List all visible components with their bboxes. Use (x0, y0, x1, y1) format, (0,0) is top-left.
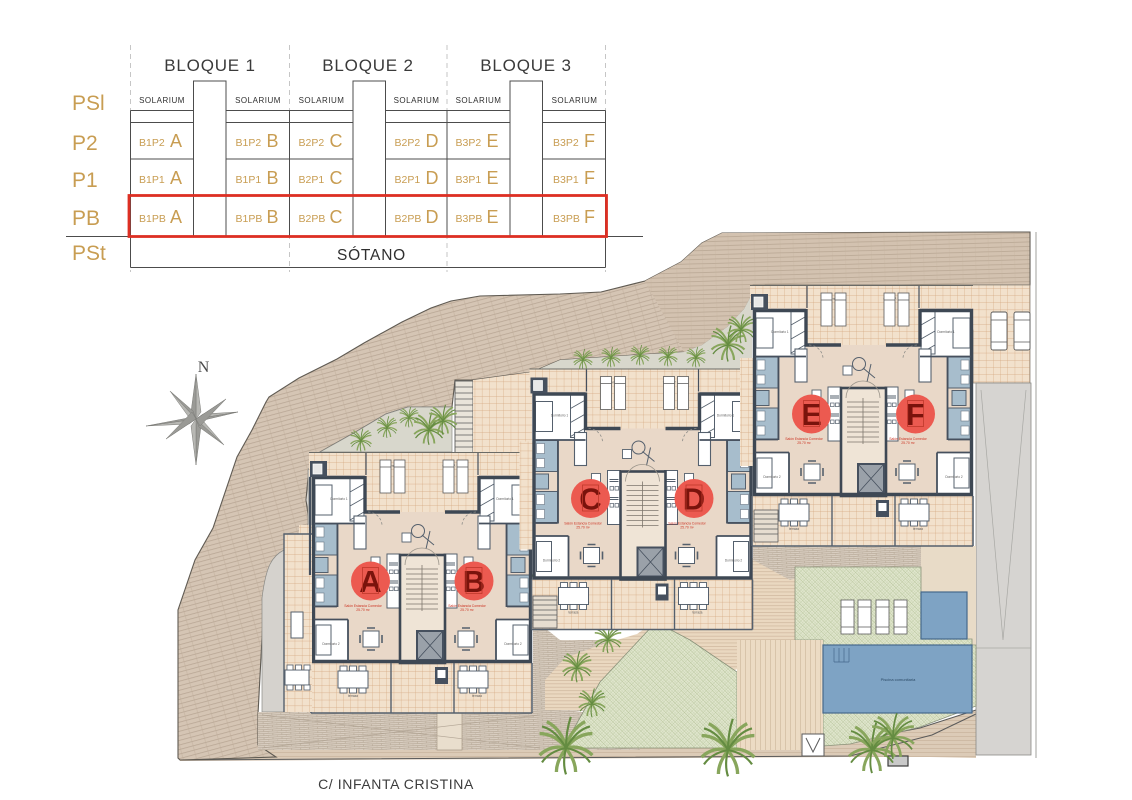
svg-text:B1P1: B1P1 (139, 174, 165, 186)
svg-text:B1P2: B1P2 (139, 137, 165, 149)
svg-text:A: A (170, 131, 182, 151)
svg-text:B3P2: B3P2 (456, 137, 482, 149)
svg-text:B3P1: B3P1 (553, 174, 579, 186)
svg-text:SÓTANO: SÓTANO (337, 247, 406, 264)
svg-text:A: A (170, 168, 182, 188)
svg-text:D: D (426, 207, 439, 227)
svg-text:B3P1: B3P1 (456, 174, 482, 186)
svg-text:25.70 m²: 25.70 m² (576, 526, 590, 530)
svg-text:B3PB: B3PB (553, 213, 580, 225)
svg-text:F: F (584, 131, 595, 151)
svg-text:BLOQUE 2: BLOQUE 2 (322, 56, 413, 75)
svg-text:BLOQUE 1: BLOQUE 1 (164, 56, 255, 75)
svg-text:D: D (426, 131, 439, 151)
svg-text:B2PB: B2PB (395, 213, 422, 225)
svg-text:SOLARIUM: SOLARIUM (235, 96, 281, 105)
svg-text:D: D (426, 168, 439, 188)
svg-text:E: E (487, 168, 499, 188)
svg-text:25.70 m²: 25.70 m² (901, 441, 915, 445)
svg-text:B2P2: B2P2 (395, 137, 421, 149)
svg-text:E: E (487, 131, 499, 151)
svg-text:P1: P1 (72, 169, 98, 192)
svg-text:PB: PB (72, 207, 100, 230)
svg-text:B1PB: B1PB (139, 213, 166, 225)
svg-text:PSl: PSl (72, 92, 105, 115)
svg-text:C: C (330, 131, 343, 151)
svg-text:SOLARIUM: SOLARIUM (552, 96, 598, 105)
svg-text:B2P2: B2P2 (299, 137, 325, 149)
svg-text:A: A (170, 207, 182, 227)
svg-text:SOLARIUM: SOLARIUM (139, 96, 185, 105)
svg-text:BLOQUE 3: BLOQUE 3 (480, 56, 571, 75)
svg-text:B2P1: B2P1 (299, 174, 325, 186)
svg-text:SOLARIUM: SOLARIUM (394, 96, 440, 105)
svg-text:B1P1: B1P1 (236, 174, 262, 186)
svg-text:B: B (267, 168, 279, 188)
svg-text:B3P2: B3P2 (553, 137, 579, 149)
svg-text:B: B (267, 207, 279, 227)
svg-text:C: C (330, 207, 343, 227)
svg-text:PSt: PSt (72, 242, 106, 265)
svg-text:C: C (330, 168, 343, 188)
svg-text:B: B (267, 131, 279, 151)
svg-text:25.70 m²: 25.70 m² (356, 608, 370, 612)
svg-text:B2P1: B2P1 (395, 174, 421, 186)
svg-text:F: F (584, 207, 595, 227)
svg-text:25.70 m²: 25.70 m² (797, 441, 811, 445)
svg-text:N: N (198, 359, 210, 376)
svg-text:25.70 m²: 25.70 m² (680, 526, 694, 530)
svg-text:C/ INFANTA CRISTINA: C/ INFANTA CRISTINA (318, 776, 474, 792)
svg-text:B2PB: B2PB (299, 213, 326, 225)
svg-text:E: E (487, 207, 499, 227)
svg-text:B1P2: B1P2 (236, 137, 262, 149)
svg-text:SOLARIUM: SOLARIUM (456, 96, 502, 105)
svg-text:SOLARIUM: SOLARIUM (299, 96, 345, 105)
svg-text:P2: P2 (72, 132, 98, 155)
svg-text:B1PB: B1PB (236, 213, 263, 225)
svg-text:F: F (584, 168, 595, 188)
svg-text:25.70 m²: 25.70 m² (460, 608, 474, 612)
svg-text:B3PB: B3PB (456, 213, 483, 225)
svg-text:Piscina comunitaria: Piscina comunitaria (881, 677, 916, 682)
